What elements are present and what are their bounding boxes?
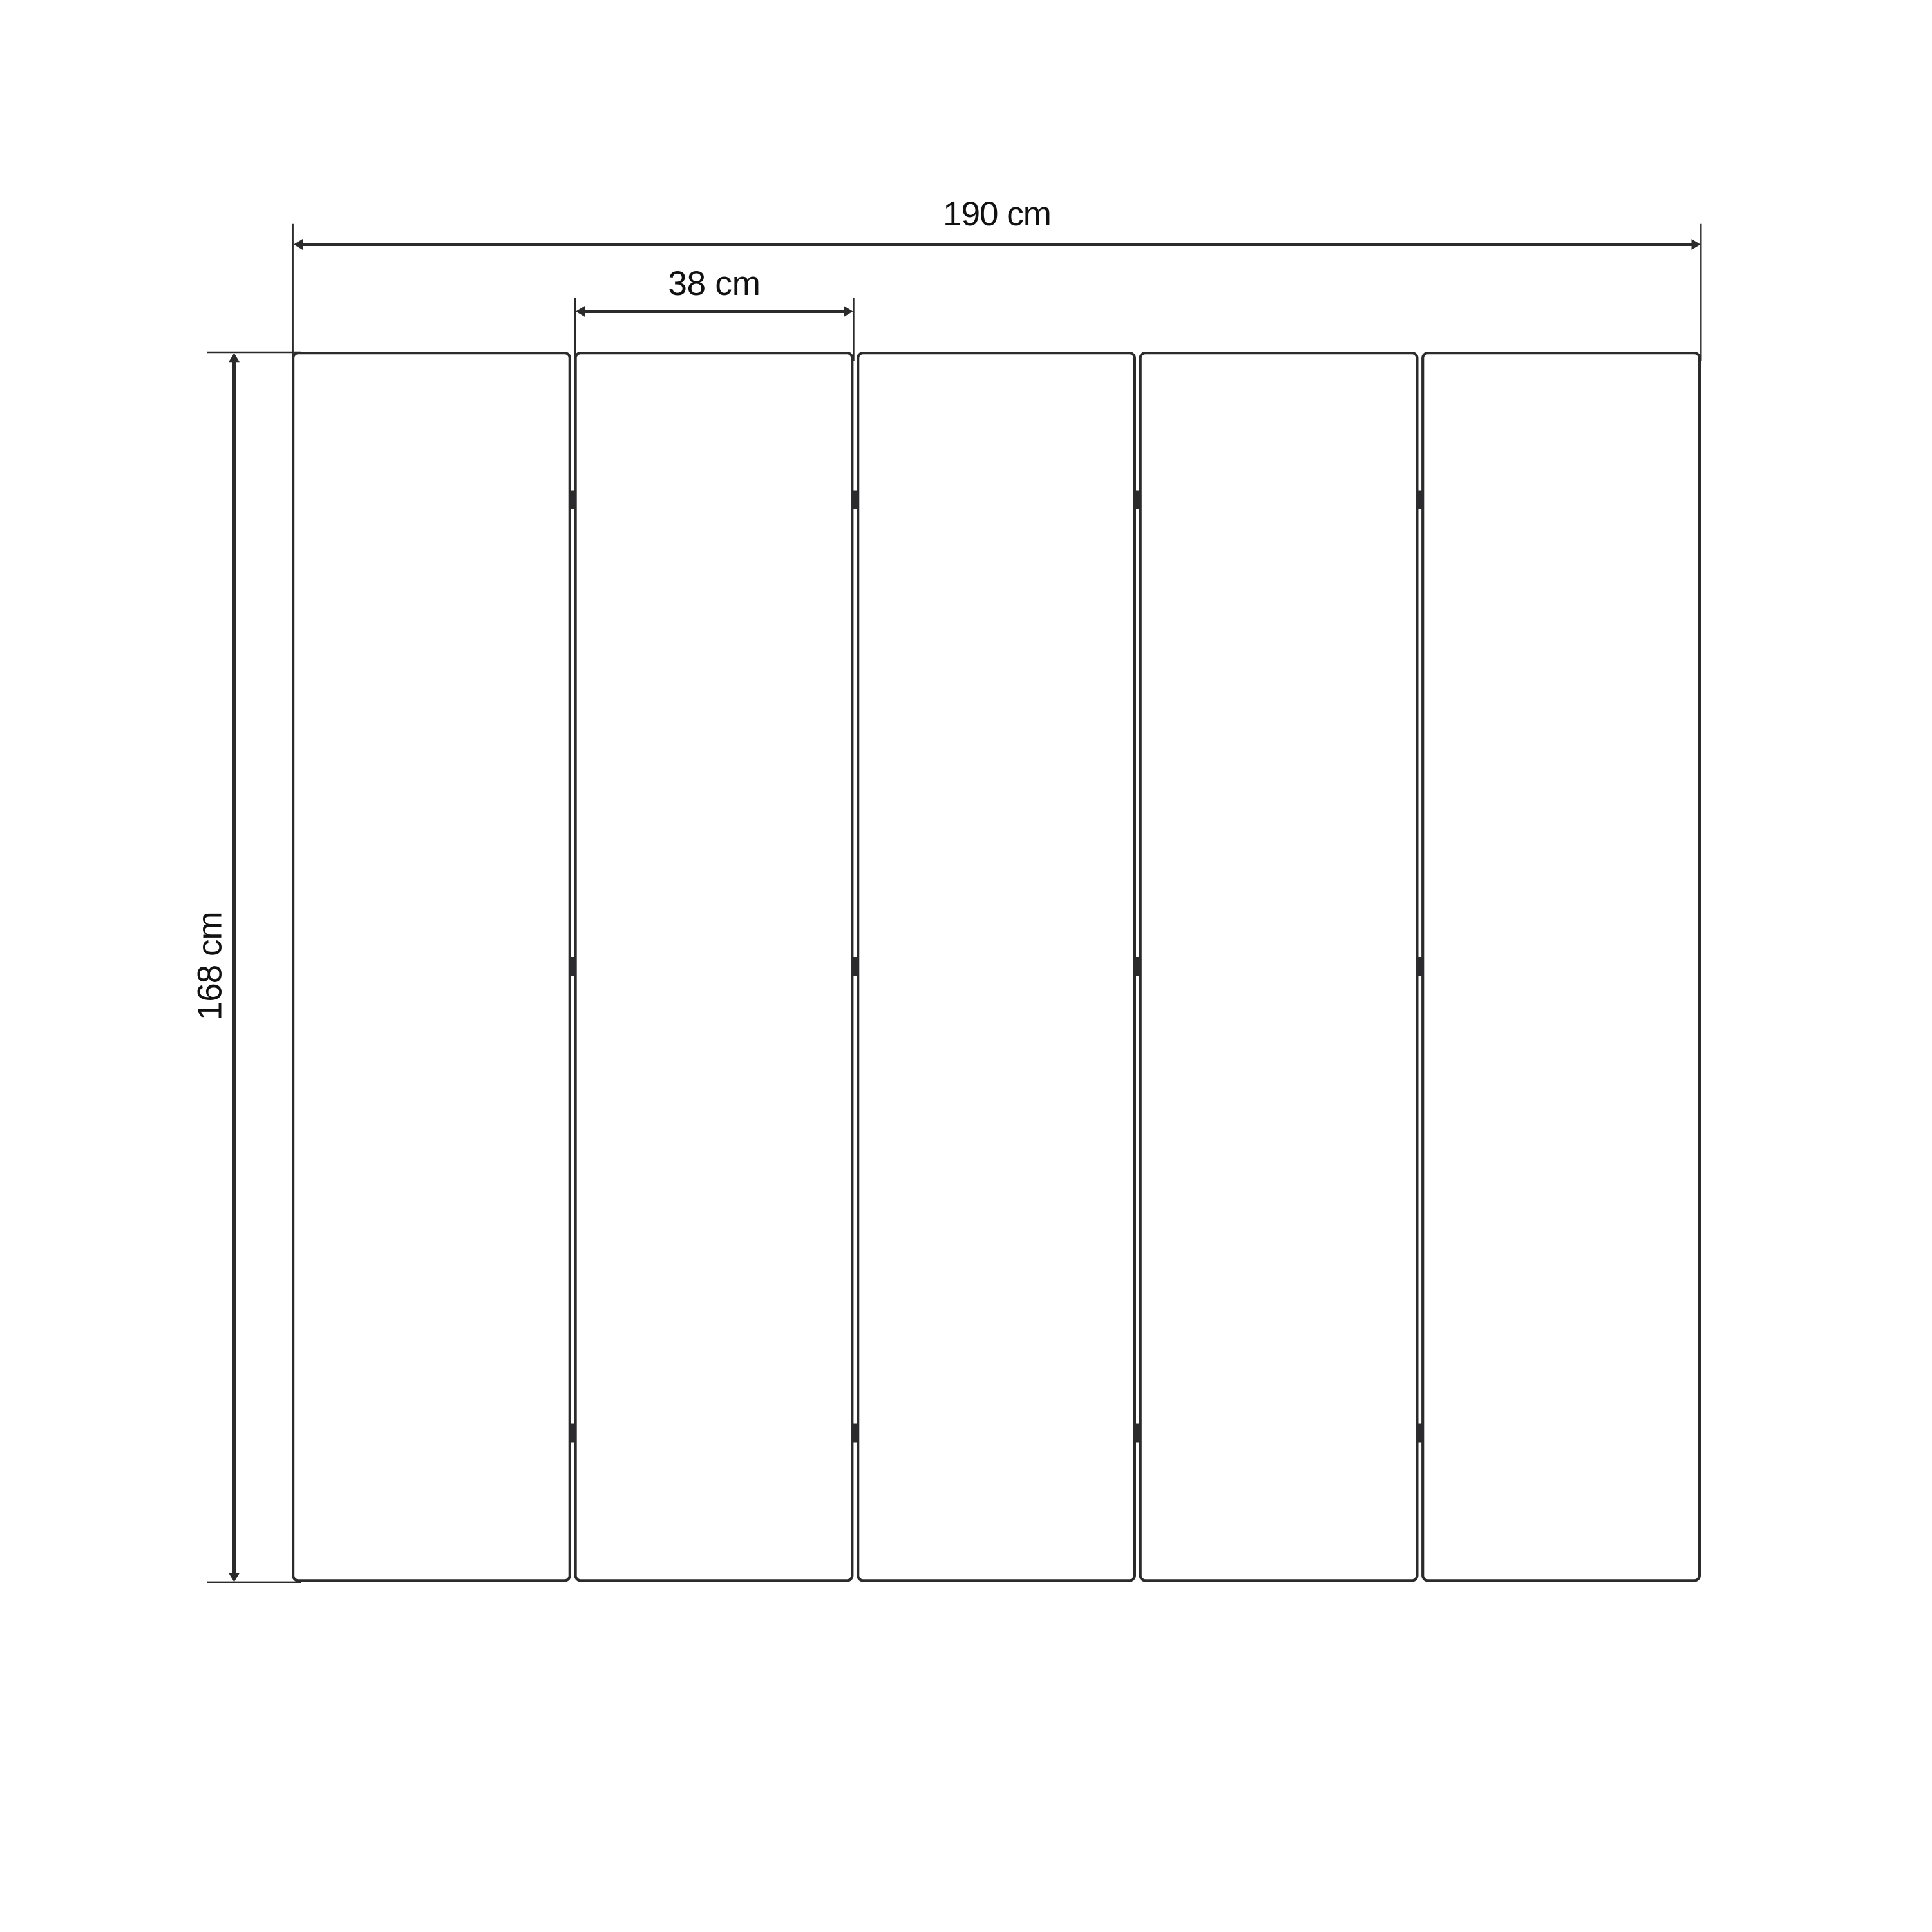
svg-text:168 cm: 168 cm (191, 912, 229, 1020)
svg-text:38 cm: 38 cm (668, 265, 760, 303)
svg-text:190 cm: 190 cm (943, 195, 1051, 233)
